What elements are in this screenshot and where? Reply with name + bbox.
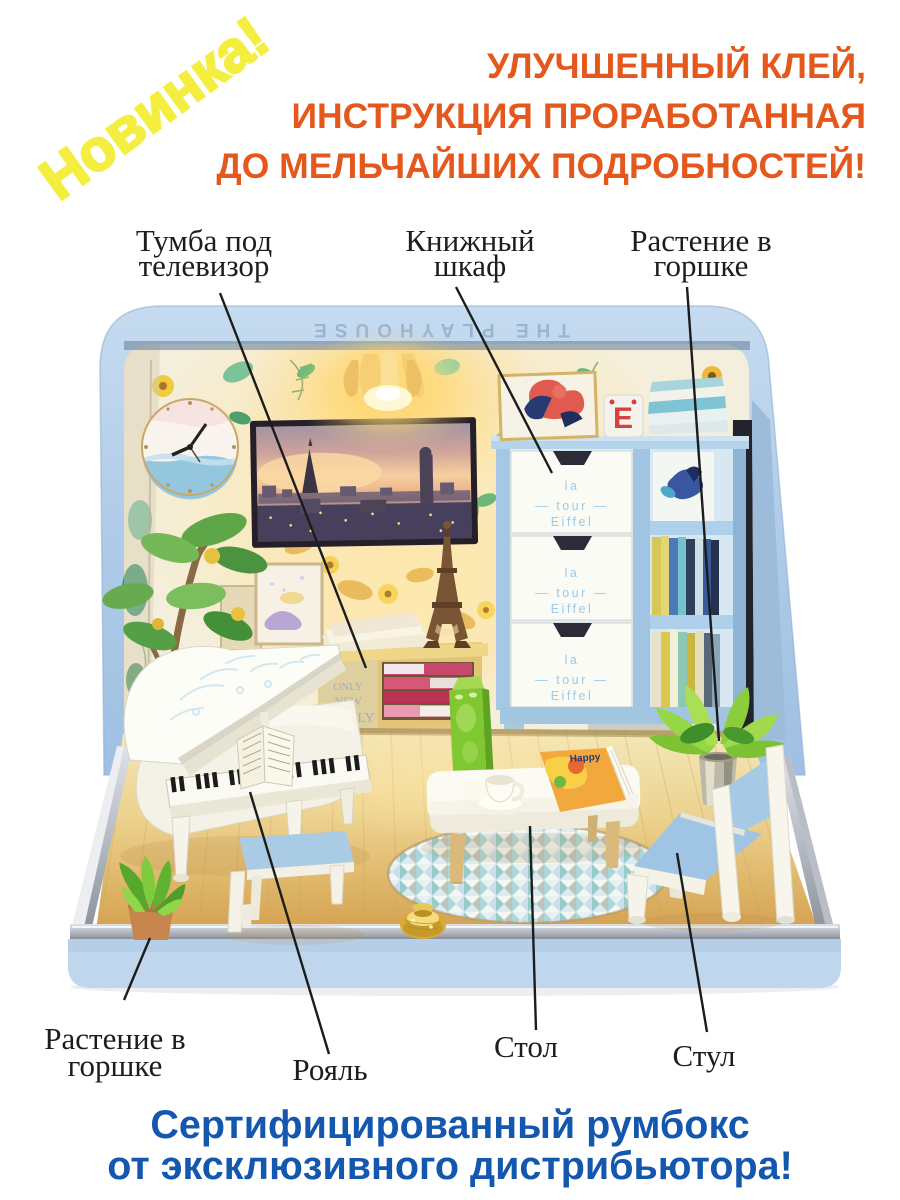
svg-text:горшке: горшке <box>654 248 749 283</box>
svg-text:шкаф: шкаф <box>434 248 506 283</box>
svg-text:la: la <box>565 653 580 667</box>
svg-text:Сертифицированный румбокс: Сертифицированный румбокс <box>150 1103 749 1147</box>
svg-text:телевизор: телевизор <box>139 248 270 283</box>
svg-text:от эксклюзивного дистрибьютора: от эксклюзивного дистрибьютора! <box>107 1144 793 1188</box>
svg-text:ONLY: ONLY <box>333 681 363 693</box>
svg-text:— tour —: — tour — <box>535 499 609 513</box>
svg-text:Рояль: Рояль <box>292 1052 367 1087</box>
svg-text:ИНСТРУКЦИЯ ПРОРАБОТАННАЯ: ИНСТРУКЦИЯ ПРОРАБОТАННАЯ <box>291 96 866 136</box>
svg-text:E: E <box>613 402 633 435</box>
svg-text:— tour —: — tour — <box>535 586 609 600</box>
svg-text:Eiffel: Eiffel <box>551 689 594 703</box>
svg-text:Happy: Happy <box>569 752 601 765</box>
svg-text:Стул: Стул <box>672 1038 735 1073</box>
svg-text:Eiffel: Eiffel <box>551 602 594 616</box>
svg-text:la: la <box>565 566 580 580</box>
svg-text:горшке: горшке <box>68 1048 163 1083</box>
svg-text:— tour —: — tour — <box>535 673 609 687</box>
svg-text:Стол: Стол <box>494 1029 558 1064</box>
svg-text:Eiffel: Eiffel <box>551 515 594 529</box>
svg-text:УЛУЧШЕННЫЙ КЛЕЙ,: УЛУЧШЕННЫЙ КЛЕЙ, <box>487 46 866 86</box>
svg-text:ДО МЕЛЬЧАЙШИХ ПОДРОБНОСТЕЙ!: ДО МЕЛЬЧАЙШИХ ПОДРОБНОСТЕЙ! <box>216 146 866 186</box>
svg-text:la: la <box>565 479 580 493</box>
